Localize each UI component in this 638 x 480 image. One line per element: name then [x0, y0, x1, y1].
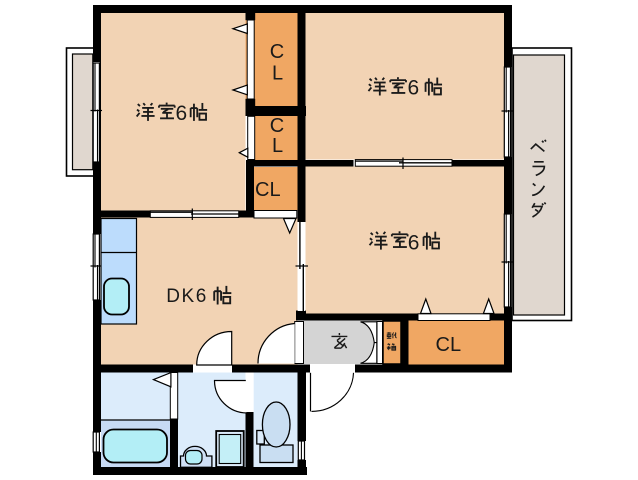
svg-text:6: 6	[408, 231, 420, 254]
svg-text:6: 6	[176, 102, 188, 125]
svg-text:L: L	[272, 63, 283, 85]
svg-text:DK6: DK6	[166, 286, 207, 307]
svg-text:CL: CL	[255, 179, 281, 201]
svg-text:C: C	[270, 41, 284, 63]
svg-text:6: 6	[408, 77, 420, 100]
svg-text:L: L	[272, 135, 283, 157]
svg-text:CL: CL	[436, 334, 462, 356]
svg-text:C: C	[270, 115, 284, 137]
